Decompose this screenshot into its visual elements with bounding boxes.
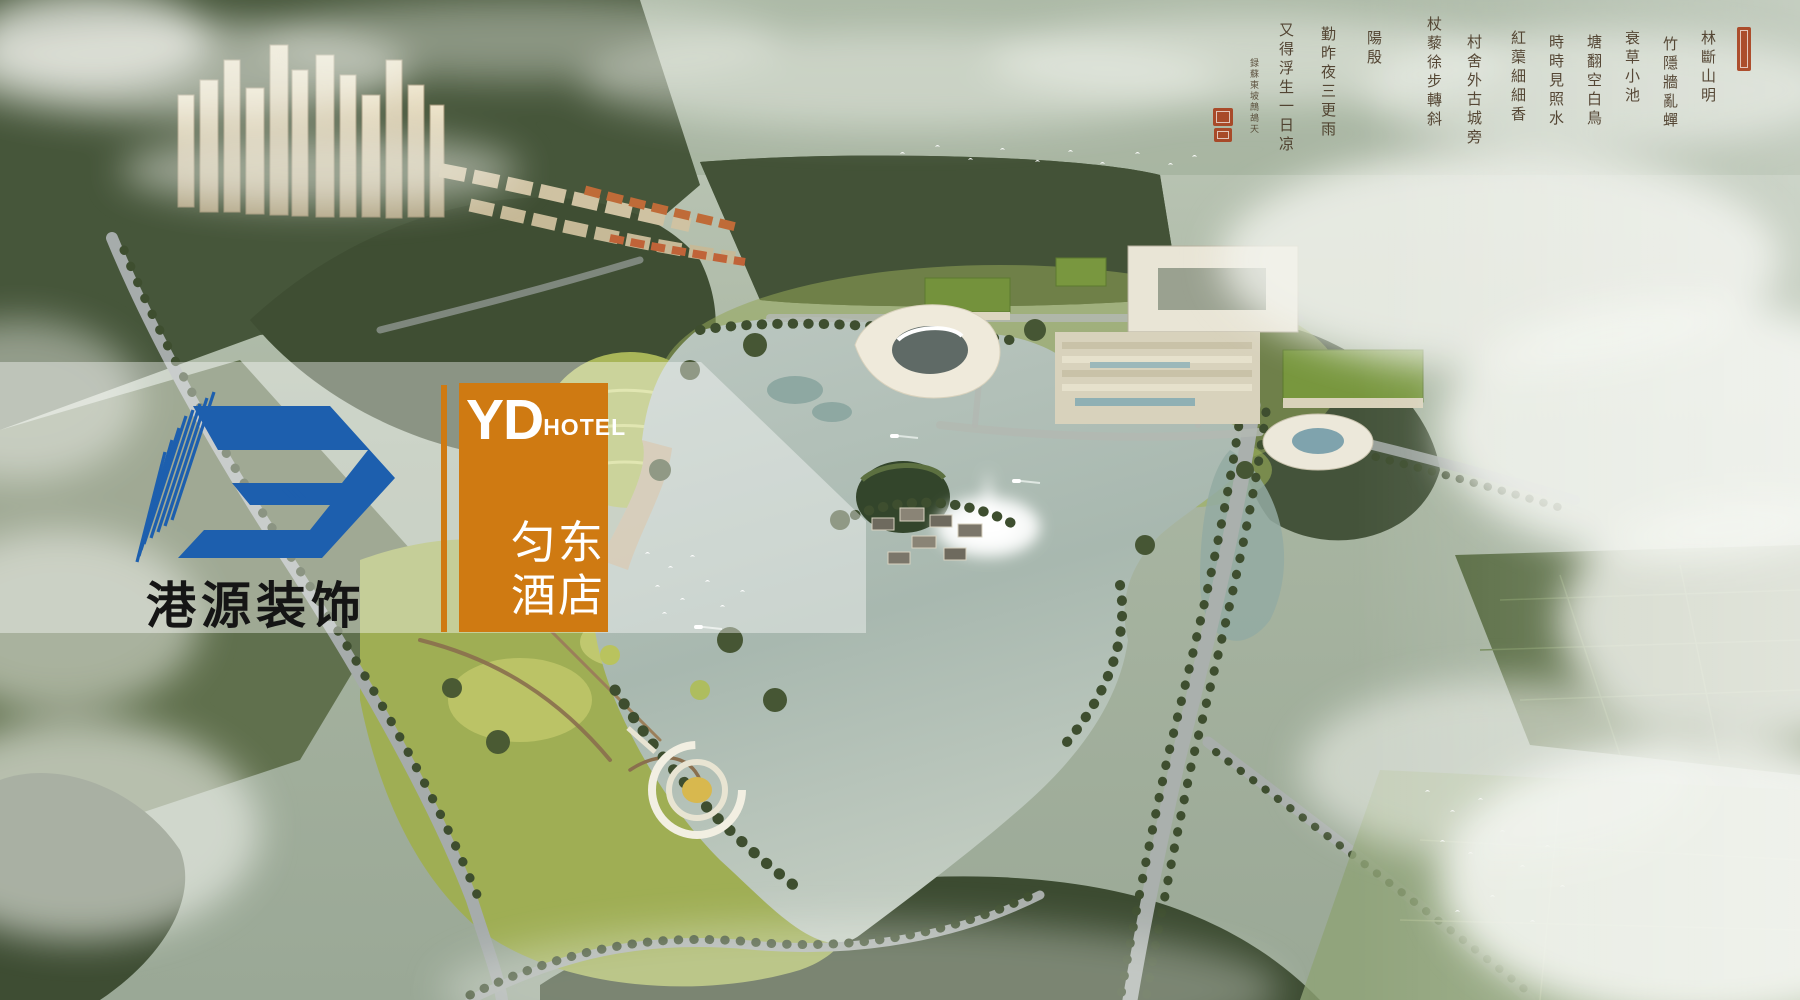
hotel-name-line2: 酒店 (511, 569, 605, 622)
company-logo (0, 0, 1800, 1000)
aerial-rendering-page: 林斷山明 竹隱牆亂蟬 衰草小池 塘翻空白鳥 時時見照水 紅蕖細細香 村舍外古城旁… (0, 0, 1800, 1000)
hotel-accent-bar (441, 385, 447, 632)
hotel-name-line1: 匀东 (511, 516, 605, 569)
hotel-initials-row: YDHOTEL (466, 387, 626, 453)
hotel-word: HOTEL (543, 414, 626, 440)
logo-g-shape (178, 406, 395, 558)
hotel-initials: YD (466, 388, 543, 452)
hotel-badge: YDHOTEL 匀东 酒店 (459, 383, 608, 632)
hotel-chinese-name: 匀东 酒店 (511, 516, 605, 622)
company-name: 港源装饰 (146, 566, 366, 638)
